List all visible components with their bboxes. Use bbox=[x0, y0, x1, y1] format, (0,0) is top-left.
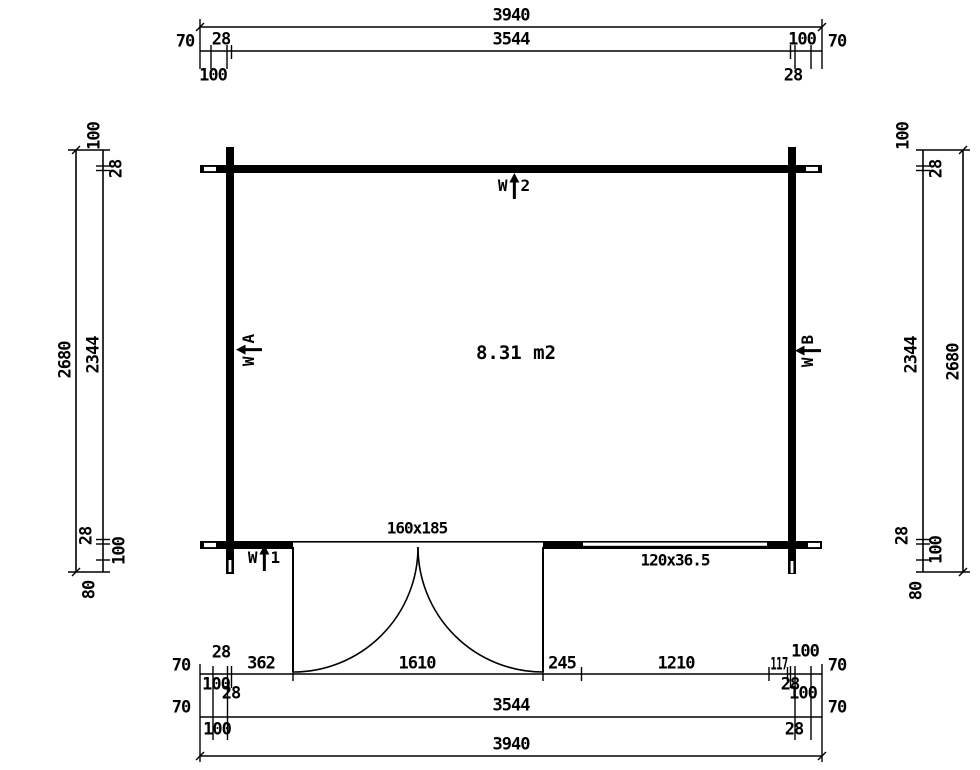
dim-top-left-70: 70 bbox=[176, 34, 194, 51]
dim-bot2-left-100-below: 100 bbox=[203, 722, 231, 739]
notch-top-left bbox=[204, 167, 216, 171]
dim-bottom-overall: 3940 bbox=[493, 737, 530, 754]
wall-marker-wb: W B bbox=[795, 335, 821, 367]
window-size-label: 120x36.5 bbox=[640, 551, 709, 570]
dim-right-80: 80 bbox=[909, 582, 926, 600]
dim-bot1-left-70: 70 bbox=[172, 658, 190, 675]
left-wall bbox=[226, 147, 234, 574]
wall-marker-w1: W 1 bbox=[248, 545, 280, 571]
dimension-lines bbox=[68, 27, 970, 756]
dim-bot2-right-70: 70 bbox=[828, 700, 846, 717]
dim-top-3544: 3544 bbox=[493, 32, 530, 49]
marker-prefix: W bbox=[498, 178, 508, 194]
marker-prefix: W bbox=[248, 550, 258, 566]
marker-id: 1 bbox=[271, 550, 281, 566]
dim-right-outer-2680: 2680 bbox=[946, 344, 963, 381]
dim-left-2344: 2344 bbox=[86, 337, 103, 374]
marker-prefix: W bbox=[800, 358, 816, 368]
dim-bot1-1210: 1210 bbox=[658, 656, 695, 673]
dim-left-bottom-100: 100 bbox=[112, 537, 129, 565]
notch-bottom-left bbox=[204, 543, 216, 547]
dim-bot1-1610: 1610 bbox=[399, 656, 436, 673]
wall-marker-w2: W 2 bbox=[498, 173, 530, 199]
dim-right-2344: 2344 bbox=[904, 337, 921, 374]
dim-left-top-100: 100 bbox=[87, 122, 104, 150]
notch-bottom-right bbox=[808, 543, 820, 547]
marker-id: B bbox=[800, 335, 816, 345]
dim-left-bottom-28: 28 bbox=[79, 527, 96, 545]
dim-bot1-245: 245 bbox=[548, 656, 576, 673]
plan-geometry bbox=[0, 0, 980, 770]
marker-prefix: W bbox=[241, 357, 257, 367]
notch-left-wall-end bbox=[229, 560, 232, 572]
dim-top-right-100: 100 bbox=[788, 32, 816, 49]
dim-right-bottom-28: 28 bbox=[895, 527, 912, 545]
door-arc-right bbox=[418, 547, 543, 672]
up-arrow-icon bbox=[236, 345, 262, 356]
dim-bot1-362: 362 bbox=[247, 656, 275, 673]
dim-bot1-right-100: 100 bbox=[791, 644, 819, 661]
door-opening-head-line bbox=[293, 541, 543, 543]
dim-bot2-3544: 3544 bbox=[493, 698, 530, 715]
dimension-ticks bbox=[72, 19, 967, 762]
dim-left-outer-2680: 2680 bbox=[58, 342, 75, 379]
notch-top-right bbox=[806, 167, 818, 171]
wall-marker-wa: W A bbox=[236, 334, 262, 366]
dim-bot1-117: 117 bbox=[770, 657, 787, 674]
door-size-label: 160x185 bbox=[387, 519, 447, 538]
up-arrow-icon bbox=[259, 545, 270, 571]
marker-id: 2 bbox=[521, 178, 531, 194]
dim-top-right-70: 70 bbox=[828, 34, 846, 51]
dim-bot1-right-100-below: 100 bbox=[789, 686, 817, 703]
dim-top-right-28-below: 28 bbox=[784, 68, 802, 85]
dim-right-top-100: 100 bbox=[896, 122, 913, 150]
dim-bot2-right-28-below: 28 bbox=[785, 722, 803, 739]
dim-top-left-28: 28 bbox=[212, 32, 230, 49]
dim-top-left-100-below: 100 bbox=[199, 68, 227, 85]
up-arrow-icon bbox=[795, 346, 821, 357]
up-arrow-icon bbox=[509, 173, 520, 199]
floor-plan-canvas: 3940 70 28 3544 100 70 100 28 2680 100 2… bbox=[0, 0, 980, 770]
dim-right-bottom-100: 100 bbox=[929, 536, 946, 564]
dim-bot1-right-70: 70 bbox=[828, 658, 846, 675]
dim-bot1-left-28-below: 28 bbox=[222, 686, 240, 703]
window-glazing bbox=[583, 543, 767, 546]
dim-right-top-28: 28 bbox=[929, 160, 946, 178]
room-area-label: 8.31 m2 bbox=[476, 342, 556, 364]
dim-top-overall: 3940 bbox=[493, 8, 530, 25]
dim-left-80: 80 bbox=[82, 581, 99, 599]
dim-left-top-28: 28 bbox=[109, 160, 126, 178]
marker-id: A bbox=[241, 334, 257, 344]
dim-bot1-left-28: 28 bbox=[212, 645, 230, 662]
dim-bot2-left-70: 70 bbox=[172, 700, 190, 717]
notch-right-wall-end bbox=[791, 561, 794, 573]
top-wall bbox=[200, 165, 822, 173]
